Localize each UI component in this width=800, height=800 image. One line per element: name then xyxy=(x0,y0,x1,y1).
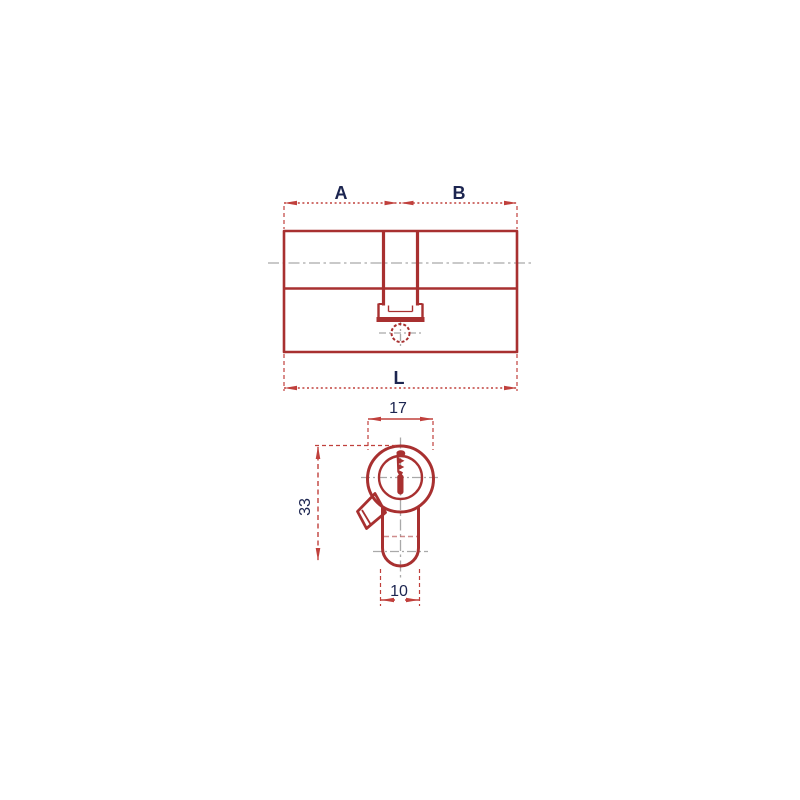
dim-label-l: L xyxy=(394,368,405,388)
arrow-17-left xyxy=(368,417,381,422)
cylinder-body-outline xyxy=(284,231,517,352)
arrow-a-right xyxy=(385,201,398,206)
arrow-17-right xyxy=(420,417,433,422)
dim-label-b: B xyxy=(453,183,466,203)
arrow-33-top xyxy=(316,446,321,459)
arrow-33-bottom xyxy=(316,548,321,561)
arrow-a-left xyxy=(284,201,297,206)
dim-label-33: 33 xyxy=(297,498,314,516)
dim-label-a: A xyxy=(335,183,348,203)
centerlines-group xyxy=(268,263,533,580)
dim-label-17: 17 xyxy=(389,400,407,417)
arrow-10-right xyxy=(406,598,419,603)
cylinder-technical-drawing: A B L 17 33 10 xyxy=(0,0,800,800)
arrow-b-right xyxy=(504,201,517,206)
arrow-l-right xyxy=(504,386,517,391)
dim-label-10: 10 xyxy=(390,583,408,600)
arrow-b-left xyxy=(401,201,414,206)
technical-drawing-page: A B L 17 33 10 xyxy=(0,0,800,800)
arrow-l-left xyxy=(284,386,297,391)
